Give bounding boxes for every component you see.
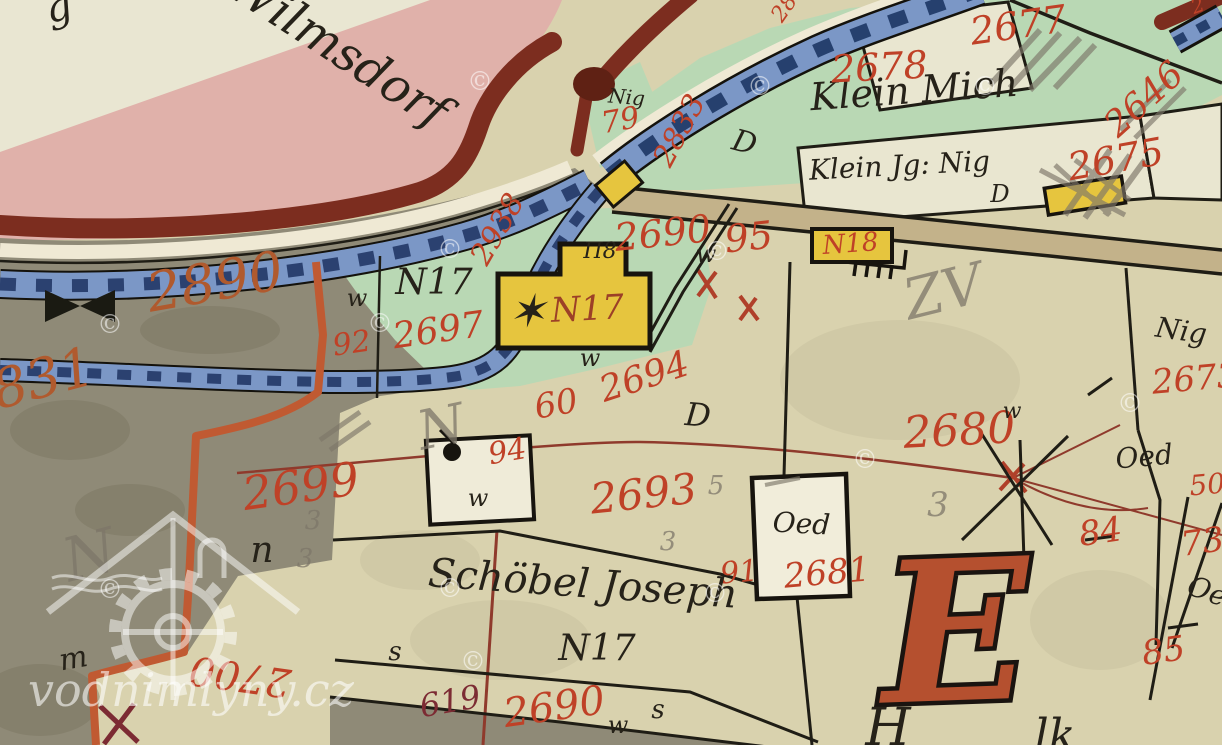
letter-d-klein-parcel: D <box>989 180 1009 208</box>
house-number-n18: N18 <box>821 227 880 261</box>
pencil-3-a: 3 <box>305 506 322 536</box>
copyright-symbol: © <box>852 445 878 475</box>
pencil-5: 5 <box>708 471 725 501</box>
copyright-symbol: © <box>747 72 773 102</box>
building-label-oed: Oed <box>772 506 831 542</box>
letter-s-bottom: s <box>651 695 664 725</box>
copyright-symbol: © <box>367 309 393 339</box>
letter-w-square-building: w <box>468 484 489 512</box>
letter-s-left-bottom: s <box>388 637 401 667</box>
copyright-symbol: © <box>460 647 486 677</box>
parcel-number-2680: 2680 <box>901 402 1016 459</box>
house-mark-n8: Π8 <box>582 239 616 264</box>
label-oed-right: Oed <box>1114 438 1174 476</box>
pencil-3-c: 3 <box>660 527 677 557</box>
house-number-n17-meadow: N17 <box>394 262 472 303</box>
watermark-site-text: vodnimlyny.cz <box>28 663 355 717</box>
parcel-number-85: 85 <box>1139 628 1187 674</box>
parcel-number-95: 95 <box>722 213 775 262</box>
parcel-number-2681: 2681 <box>781 549 872 596</box>
cadastral-map: gWilmsdorfKlein MichKlein Jg: NigDNig792… <box>0 0 1222 745</box>
letter-n-2699: n <box>250 530 273 571</box>
house-star-mark: ✶ <box>508 284 549 338</box>
parcel-number-2678: 2678 <box>829 43 929 92</box>
pencil-3-b: 3 <box>297 544 314 574</box>
parcel-number-50: 50 <box>1188 467 1222 503</box>
house-number-n17-building: N17 <box>549 287 625 331</box>
letter-w-left: w <box>347 284 368 312</box>
copyright-symbol: © <box>467 67 493 97</box>
copyright-symbol: © <box>437 235 463 265</box>
copyright-symbol: © <box>702 579 728 609</box>
house-number-n17-schoebel: N17 <box>557 628 635 669</box>
copyright-symbol: © <box>437 574 463 604</box>
letter-w-bottom: w <box>608 711 629 739</box>
parcel-number-73: 73 <box>1178 519 1222 565</box>
script-fragment-k: lk <box>1035 710 1076 745</box>
copyright-symbol: © <box>97 310 123 340</box>
parcel-number-79: 79 <box>599 100 643 141</box>
parcel-number-94: 94 <box>486 431 530 472</box>
letter-d-2680: D <box>683 395 713 435</box>
parcel-number-2673: 2673 <box>1149 355 1222 402</box>
copyright-symbol: © <box>704 237 730 267</box>
letter-w-2680-node: w <box>1003 399 1022 424</box>
script-fragment-h: H <box>864 698 912 745</box>
copyright-symbol: © <box>972 72 998 102</box>
parcel-number-60: 60 <box>531 381 581 428</box>
copyright-symbol: © <box>97 575 123 605</box>
letter-w-below-house: w <box>580 344 601 372</box>
copyright-symbol: © <box>1117 389 1143 419</box>
parcel-number-84: 84 <box>1076 509 1124 555</box>
historic-cadastral-map-canvas: gWilmsdorfKlein MichKlein Jg: NigDNig792… <box>0 0 1222 745</box>
